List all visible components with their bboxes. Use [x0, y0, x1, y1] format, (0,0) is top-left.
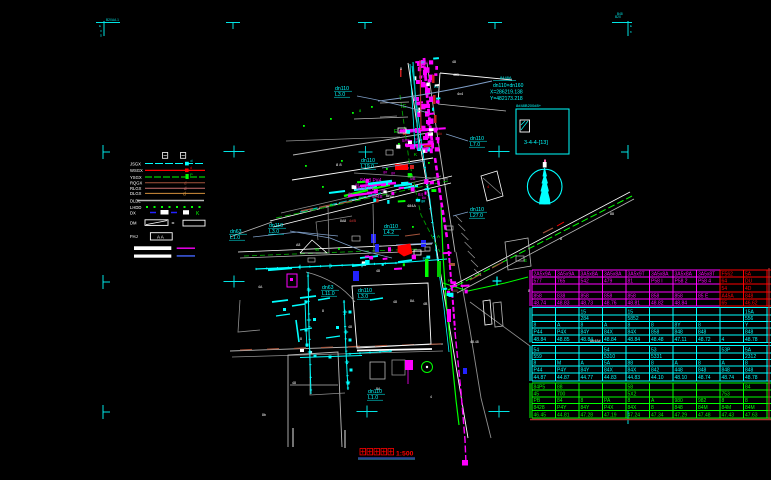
svg-text:44.10: 44.10 — [651, 375, 664, 381]
svg-text:3A5x8A: 3A5x8A — [581, 271, 599, 277]
svg-text:88: 88 — [610, 212, 614, 216]
svg-text:48.84: 48.84 — [534, 337, 547, 343]
svg-text:A A: A A — [157, 235, 164, 240]
svg-text:P4Y: P4Y — [557, 367, 567, 373]
svg-text:65: 65 — [722, 300, 728, 306]
svg-text:48.48: 48.48 — [651, 337, 664, 343]
svg-text:848: 848 — [675, 329, 684, 335]
svg-text:982: 982 — [698, 398, 707, 404]
svg-text:8448A: 8448A — [500, 75, 512, 80]
svg-text:44.83: 44.83 — [628, 375, 641, 381]
svg-text:3A5x8A: 3A5x8A — [675, 271, 693, 277]
svg-text:P4Y: P4Y — [557, 405, 567, 411]
svg-text:848: 848 — [698, 367, 707, 373]
svg-text:48.74: 48.74 — [722, 375, 735, 381]
svg-text:48: 48 — [292, 381, 296, 385]
svg-text:54: 54 — [534, 347, 540, 353]
svg-text:15: 15 — [628, 309, 634, 315]
svg-text:48.10: 48.10 — [675, 375, 688, 381]
svg-text:8 8: 8 8 — [336, 162, 342, 167]
svg-text:8: 8 — [745, 361, 748, 367]
svg-text:8: 8 — [628, 323, 631, 329]
svg-text:3A5x8T: 3A5x8T — [698, 271, 715, 277]
svg-text:8: 8 — [581, 323, 584, 329]
svg-text:8: 8 — [698, 323, 701, 329]
svg-text:54: 54 — [604, 347, 610, 353]
svg-text:8: 8 — [722, 398, 725, 404]
svg-text:5X2: 5X2 — [628, 391, 637, 397]
svg-text:48.84: 48.84 — [675, 300, 688, 306]
svg-text:4#B: 4#B — [349, 218, 356, 223]
svg-text:84: 84 — [745, 384, 751, 390]
svg-text:48: 48 — [452, 60, 456, 64]
svg-text:=: = — [172, 221, 175, 227]
svg-text:47.29: 47.29 — [675, 412, 688, 418]
svg-text:48: 48 — [376, 269, 380, 273]
svg-text:P4X: P4X — [557, 329, 567, 335]
svg-text:8: 8 — [322, 309, 324, 313]
svg-text:542: 542 — [581, 278, 590, 284]
svg-text:8: 8 — [651, 361, 654, 367]
svg-text:84: 84 — [557, 398, 563, 404]
svg-text:842: 842 — [651, 367, 660, 373]
svg-text:48.85: 48.85 — [557, 337, 570, 343]
svg-text:8: 8 — [534, 361, 537, 367]
svg-text:84M: 84M — [745, 405, 755, 411]
svg-text:8#: 8# — [422, 74, 426, 78]
svg-text:47.34: 47.34 — [651, 412, 664, 418]
svg-text:8#: 8# — [422, 196, 426, 200]
svg-text:858: 858 — [534, 293, 543, 299]
svg-text:PA: PA — [604, 398, 611, 404]
svg-text:8: 8 — [628, 398, 631, 404]
svg-text:44.87: 44.87 — [557, 375, 570, 381]
svg-text:DM: DM — [130, 220, 137, 225]
svg-text:3A5x9A: 3A5x9A — [557, 271, 575, 277]
svg-text:84P5: 84P5 — [534, 384, 546, 390]
svg-text:848: 848 — [722, 367, 731, 373]
svg-text:8#: 8# — [390, 195, 394, 199]
svg-text:84X: 84X — [628, 329, 638, 335]
svg-text:48.72: 48.72 — [698, 337, 711, 343]
svg-text:85 E: 85 E — [698, 293, 709, 299]
svg-text:8#: 8# — [355, 183, 359, 187]
svg-text:848: 848 — [745, 293, 754, 299]
svg-text:K: K — [414, 152, 417, 157]
svg-text:B2X: B2X — [615, 15, 622, 19]
svg-text:44.81: 44.81 — [557, 412, 570, 418]
svg-text:81: 81 — [628, 278, 634, 284]
svg-text:848: 848 — [745, 367, 754, 373]
svg-text:47.11: 47.11 — [675, 337, 687, 343]
svg-text:483: 483 — [453, 73, 459, 77]
svg-text:858: 858 — [675, 293, 684, 299]
svg-text:700: 700 — [557, 391, 566, 397]
svg-text:47.63: 47.63 — [745, 412, 758, 418]
svg-text:8#: 8# — [423, 256, 427, 260]
svg-text:3A5x9T: 3A5x9T — [628, 271, 645, 277]
svg-text:48.84: 48.84 — [628, 337, 641, 343]
svg-text:d: d — [191, 159, 193, 163]
svg-text:47.28: 47.28 — [581, 412, 594, 418]
svg-text:858: 858 — [651, 293, 660, 299]
svg-text:Y=482173.218: Y=482173.218 — [490, 96, 523, 102]
svg-text:d: d — [183, 192, 186, 198]
svg-text:5A: 5A — [745, 271, 752, 277]
svg-text:858: 858 — [651, 329, 660, 335]
svg-text:E8: E8 — [359, 195, 365, 200]
svg-text:8#: 8# — [348, 192, 352, 196]
svg-text:46.45: 46.45 — [534, 412, 547, 418]
svg-text:559: 559 — [534, 354, 543, 360]
svg-text:1:500: 1:500 — [396, 450, 414, 457]
svg-text:848: 848 — [698, 329, 707, 335]
svg-text:8: 8 — [698, 361, 701, 367]
svg-text:3-4-4-[13]: 3-4-4-[13] — [524, 140, 548, 146]
svg-text:X: X — [100, 29, 102, 33]
svg-text:8#: 8# — [427, 131, 431, 135]
svg-text:JSGX: JSGX — [130, 161, 141, 166]
svg-text:DLGX: DLGX — [130, 191, 142, 196]
svg-text:556: 556 — [745, 316, 754, 322]
svg-text:3A5x8A: 3A5x8A — [651, 271, 669, 277]
svg-text:48.82: 48.82 — [651, 300, 664, 306]
svg-text:15: 15 — [581, 309, 587, 315]
svg-text:44.87: 44.87 — [534, 375, 547, 381]
svg-text:8#48B200#8+: 8#48B200#8+ — [516, 103, 542, 108]
svg-text:858: 858 — [581, 293, 590, 299]
svg-text:FHJ: FHJ — [130, 234, 138, 239]
svg-text:53P: 53P — [722, 347, 732, 353]
svg-text:84Y: 84Y — [581, 367, 591, 373]
svg-text:dn110×dn160: dn110×dn160 — [493, 83, 524, 89]
svg-text:4B: 4B — [423, 302, 428, 306]
svg-text:47.48: 47.48 — [698, 412, 711, 418]
svg-text:4A: 4A — [258, 285, 263, 289]
svg-text:58: 58 — [628, 384, 634, 390]
svg-text:P58 I: P58 I — [651, 278, 663, 284]
svg-text:8: 8 — [651, 405, 654, 411]
svg-text:8#: 8# — [438, 132, 442, 136]
svg-text:P44: P44 — [534, 329, 543, 335]
svg-text:E: E — [524, 258, 527, 263]
svg-text:15A: 15A — [745, 309, 755, 315]
svg-text:48.76: 48.76 — [604, 300, 617, 306]
svg-text:5310: 5310 — [604, 354, 615, 360]
svg-text:838: 838 — [557, 293, 566, 299]
svg-text:48.48: 48.48 — [470, 340, 479, 344]
svg-text:47.24: 47.24 — [628, 412, 641, 418]
svg-text:5A: 5A — [745, 347, 752, 353]
svg-text:2A5x9A: 2A5x9A — [534, 271, 552, 277]
svg-text:LHDD: LHDD — [130, 205, 141, 210]
svg-text:88: 88 — [628, 361, 634, 367]
svg-text:A: A — [437, 234, 440, 239]
svg-text:8#4B: 8#4B — [372, 194, 383, 199]
svg-text:2312: 2312 — [745, 354, 756, 360]
svg-text:8: 8 — [651, 323, 654, 329]
svg-text:RQGX: RQGX — [130, 181, 143, 186]
svg-text:44.83: 44.83 — [604, 375, 617, 381]
svg-text:8#: 8# — [391, 172, 395, 176]
svg-text:5331: 5331 — [651, 354, 662, 360]
svg-text:84Y: 84Y — [581, 405, 591, 411]
svg-text:d: d — [190, 166, 192, 170]
svg-text:4D: 4D — [745, 286, 752, 292]
svg-text:84X: 84X — [628, 405, 638, 411]
svg-text:47.43: 47.43 — [722, 412, 735, 418]
svg-text:53: 53 — [651, 347, 657, 353]
svg-text:48.78: 48.78 — [745, 375, 758, 381]
svg-text:8A: 8A — [410, 299, 415, 303]
svg-text:4: 4 — [430, 395, 432, 399]
svg-text:M: M — [557, 361, 561, 367]
svg-text:858: 858 — [604, 293, 613, 299]
svg-text:8A8: 8A8 — [340, 219, 346, 223]
svg-text:44.77: 44.77 — [581, 375, 594, 381]
svg-text:48: 48 — [393, 300, 397, 304]
svg-text:B2XAA.1: B2XAA.1 — [106, 18, 119, 22]
svg-text:P: P — [190, 172, 193, 177]
svg-text:8: 8 — [400, 67, 402, 71]
svg-text:8b: 8b — [262, 413, 266, 417]
svg-text:8428: 8428 — [534, 405, 545, 411]
svg-text:484A: 484A — [407, 204, 416, 208]
svg-text:PB: PB — [534, 398, 541, 404]
svg-text:WSGX: WSGX — [130, 168, 143, 173]
svg-text:48.83: 48.83 — [557, 300, 570, 306]
svg-text:8#: 8# — [399, 129, 403, 133]
svg-text:YSGX: YSGX — [130, 175, 142, 180]
svg-text:47.19: 47.19 — [604, 412, 617, 418]
svg-text:E: E — [630, 24, 632, 28]
svg-text:4x4: 4x4 — [457, 92, 463, 96]
svg-text:48.74: 48.74 — [534, 300, 547, 306]
svg-text:45: 45 — [534, 391, 540, 397]
svg-text:858: 858 — [628, 293, 637, 299]
svg-text:DX: DX — [130, 210, 136, 215]
svg-text:E: E — [99, 24, 101, 28]
svg-text:84X: 84X — [604, 329, 614, 335]
svg-text:8: 8 — [560, 237, 562, 241]
svg-text:84X: 84X — [628, 367, 638, 373]
svg-text:CB: CB — [162, 211, 168, 215]
svg-text:284: 284 — [581, 316, 590, 322]
svg-text:980: 980 — [675, 398, 684, 404]
svg-text:F562: F562 — [722, 271, 734, 277]
svg-text:84Y: 84Y — [581, 329, 591, 335]
svg-text:5A: 5A — [604, 361, 611, 367]
svg-text:8#: 8# — [421, 60, 425, 64]
svg-text:A45A: A45A — [722, 293, 735, 299]
svg-text:P4X: P4X — [604, 405, 614, 411]
svg-text:8: 8 — [534, 323, 537, 329]
svg-text:8#: 8# — [421, 199, 425, 203]
svg-text:5852: 5852 — [628, 316, 639, 322]
svg-text:765: 765 — [557, 278, 566, 284]
svg-text:848: 848 — [745, 329, 754, 335]
svg-text:8: 8 — [581, 398, 584, 404]
svg-text:48.74: 48.74 — [698, 375, 711, 381]
svg-text:8Y: 8Y — [675, 323, 682, 329]
svg-text:P58 2: P58 2 — [675, 278, 688, 284]
svg-text:DU: DU — [745, 278, 753, 284]
svg-text:88: 88 — [557, 384, 563, 390]
svg-text:48.81: 48.81 — [628, 300, 641, 306]
svg-text:577: 577 — [534, 278, 543, 284]
svg-text:48.84: 48.84 — [581, 337, 594, 343]
svg-text:48.78: 48.78 — [745, 337, 758, 343]
svg-text:448: 448 — [675, 367, 684, 373]
svg-text:3A5x8A: 3A5x8A — [604, 271, 622, 277]
svg-text:479: 479 — [604, 278, 613, 284]
svg-text:A8: A8 — [296, 243, 300, 247]
svg-text:48.84: 48.84 — [604, 337, 617, 343]
svg-text:84X: 84X — [604, 367, 614, 373]
svg-text:X=286219.138: X=286219.138 — [490, 90, 523, 96]
svg-text:P58 4: P58 4 — [698, 278, 711, 284]
svg-text:48.73: 48.73 — [581, 300, 594, 306]
svg-text:P44: P44 — [534, 367, 543, 373]
svg-text:8: 8 — [745, 398, 748, 404]
svg-text:84M: 84M — [698, 405, 708, 411]
svg-text:54: 54 — [722, 286, 728, 292]
svg-text:8: 8 — [300, 337, 302, 341]
svg-text:848: 848 — [675, 405, 684, 411]
svg-text:46.62: 46.62 — [745, 300, 758, 306]
svg-text:753: 753 — [722, 391, 731, 397]
svg-text:64: 64 — [722, 278, 728, 284]
svg-text:84M: 84M — [722, 405, 732, 411]
svg-text:48: 48 — [348, 325, 352, 329]
svg-text:8#: 8# — [383, 170, 387, 174]
svg-text:4: 4 — [722, 337, 725, 343]
